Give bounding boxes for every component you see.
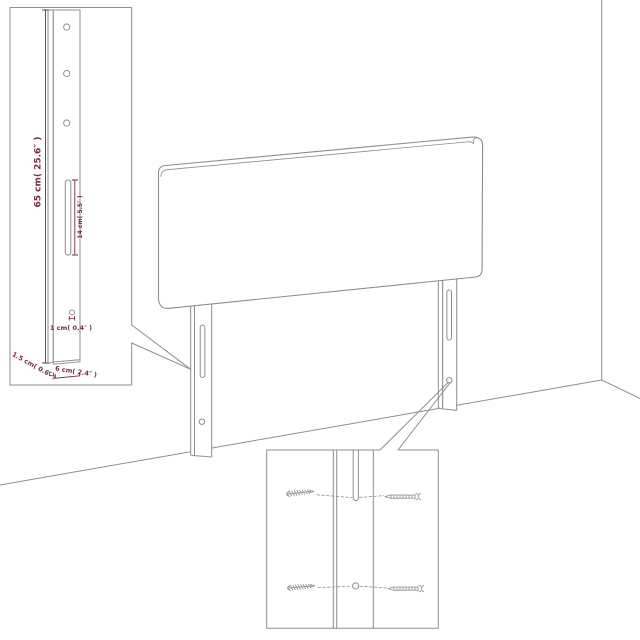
headboard-panel — [159, 137, 483, 308]
leg-right-side-face — [438, 266, 442, 409]
leg-right-hole — [447, 378, 452, 383]
leg-left-hole — [199, 419, 204, 424]
leg-detail-hole — [64, 24, 70, 30]
assembly-diagram-art — [0, 0, 640, 640]
callout-line — [380, 382, 448, 450]
inset-screw-detail-background — [267, 450, 439, 628]
leg-detail-slot — [65, 180, 71, 255]
callout-line — [398, 383, 450, 450]
leg-detail-bottom-hole — [70, 310, 75, 315]
diagram-canvas: 65 cm( 25.6″ ) 14 cm( 5.5″ ) 1 cm( 0.4″ … — [0, 0, 640, 640]
dimension-label-slot-length: 14 cm( 5.5″ ) — [78, 195, 84, 238]
dimension-label-leg-height: 65 cm( 25.6″ ) — [35, 136, 44, 207]
inset-screw-detail — [267, 450, 439, 628]
leg-left-slot — [200, 325, 205, 378]
panel-outline — [159, 137, 483, 308]
leg-detail-hole — [64, 70, 70, 76]
leg-left-side-face — [191, 296, 195, 456]
leg-detail-hole — [64, 120, 70, 126]
headboard-leg-right — [438, 266, 456, 410]
headboard-leg-left — [191, 296, 212, 457]
leg-detail-side-face — [48, 10, 53, 363]
leg-right-slot — [447, 290, 452, 340]
dimension-label-hole-diameter: 1 cm( 0.4″ ) — [50, 325, 92, 332]
